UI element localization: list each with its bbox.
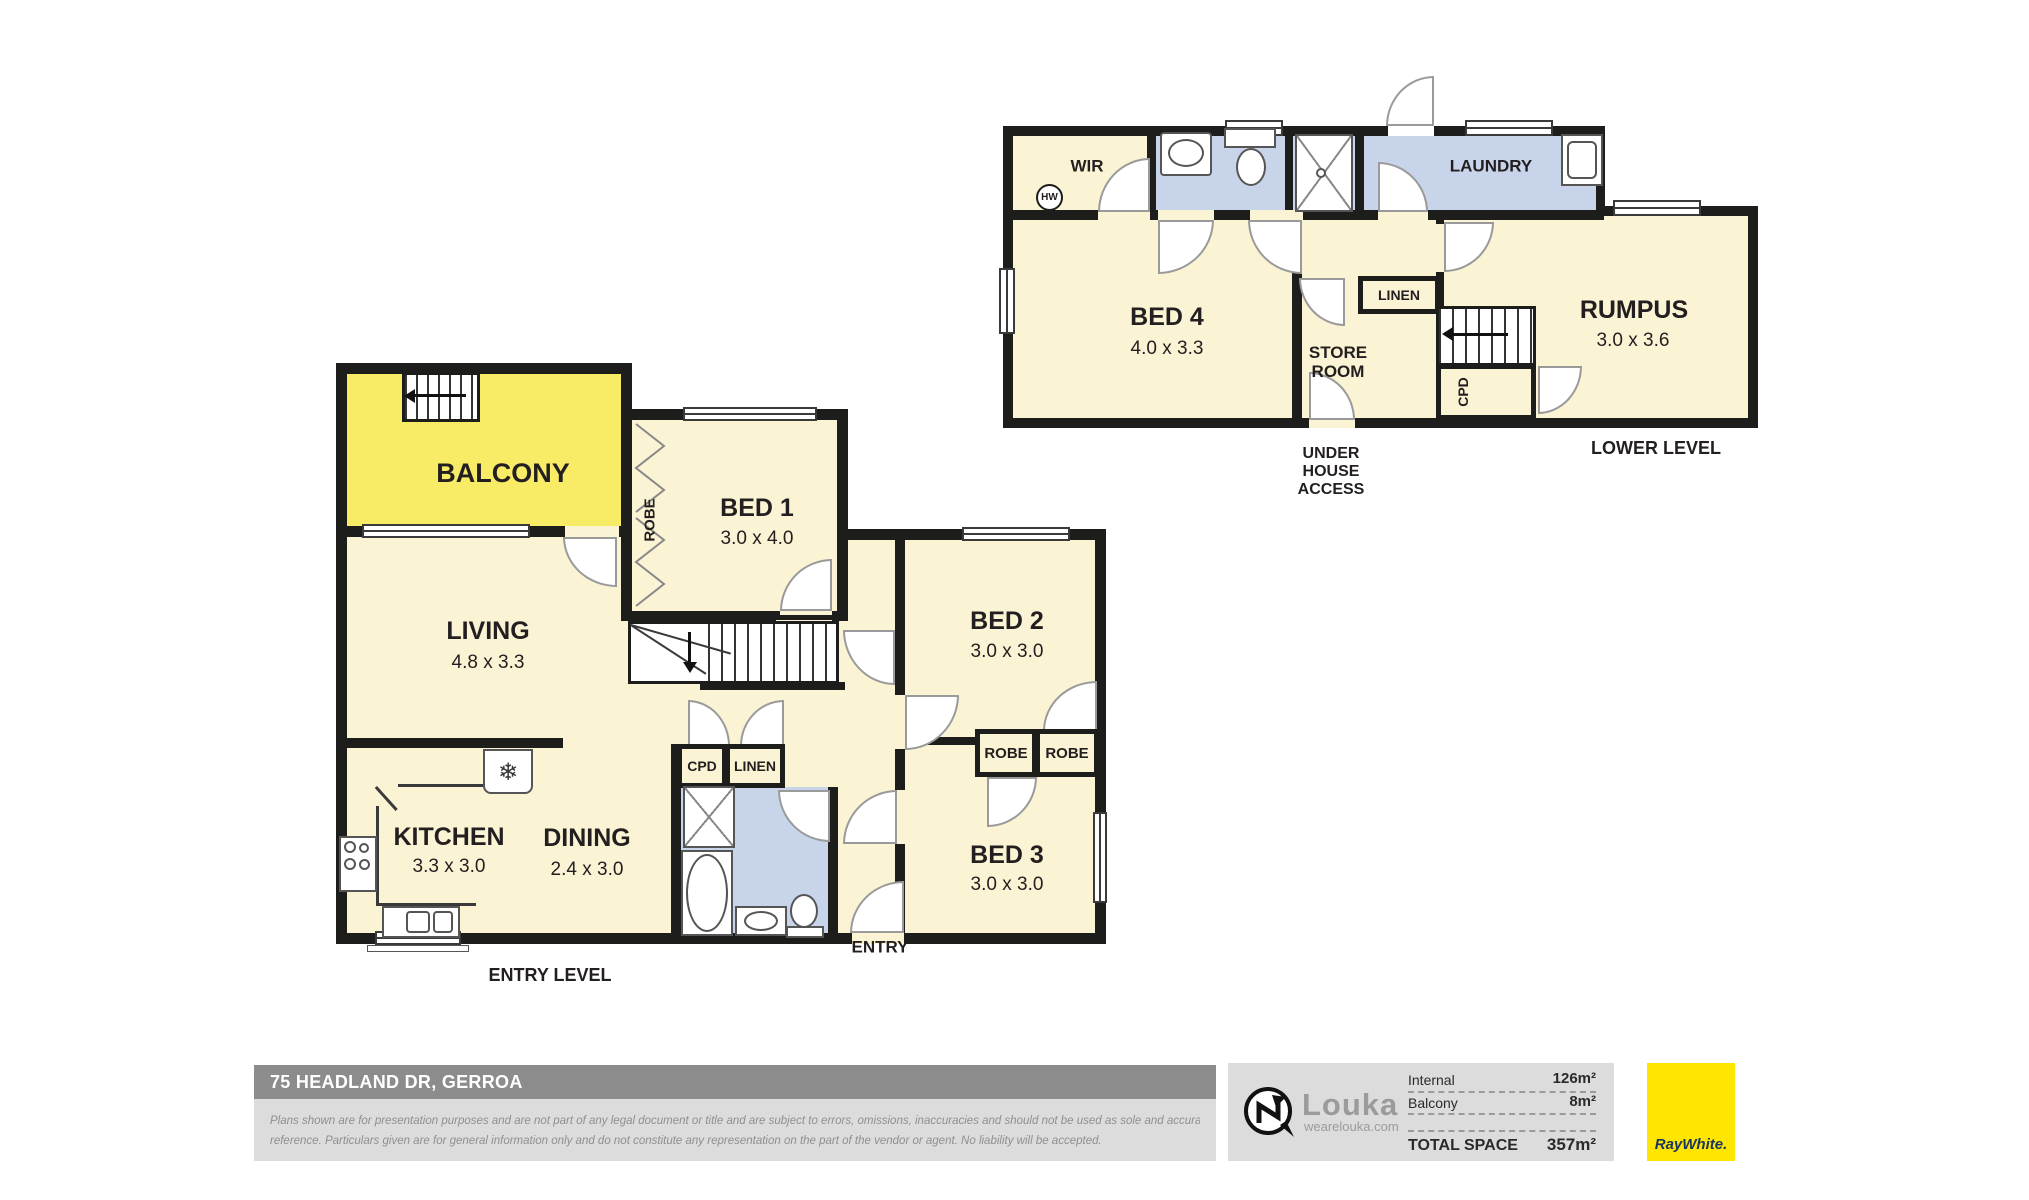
- internal-label: Internal: [1408, 1072, 1455, 1088]
- wall: [336, 738, 563, 748]
- toilet-bowl-icon: [1236, 148, 1266, 186]
- balcony-label: BALCONY: [436, 458, 570, 488]
- window: [962, 527, 1070, 541]
- door-arc: [1386, 76, 1434, 126]
- toilet-cistern-icon: [1224, 128, 1276, 148]
- wall: [1355, 126, 1364, 216]
- louka-name: Louka: [1302, 1087, 1398, 1123]
- bed3-label: BED 3: [970, 841, 1044, 869]
- laundry-tub-basin-icon: [1567, 141, 1597, 179]
- window: [1613, 200, 1701, 216]
- wall: [837, 409, 848, 621]
- rumpus-label: RUMPUS: [1580, 296, 1688, 324]
- stove-burner: [359, 859, 370, 870]
- stairs-arrow: [1452, 333, 1508, 336]
- divider: [1408, 1130, 1596, 1132]
- window: [1093, 812, 1107, 903]
- wall: [621, 537, 632, 621]
- door-opening: [1436, 224, 1444, 272]
- kitchen-dims: 3.3 x 3.0: [413, 856, 486, 878]
- divider: [1408, 1091, 1596, 1093]
- bathtub-basin: [686, 854, 728, 932]
- bed1-dims: 3.0 x 4.0: [721, 528, 794, 550]
- stairs-arrow: [414, 394, 466, 397]
- bed1-robe-label: ROBE: [642, 498, 659, 541]
- disclaimer-line1: Plans shown are for presentation purpose…: [270, 1111, 1200, 1131]
- bed3-robe-closet: ROBE: [975, 729, 1037, 777]
- raywhite-wordmark: RayWhite.: [1647, 1136, 1735, 1153]
- balcony-area-value: 8m²: [1569, 1093, 1596, 1110]
- dining-dims: 2.4 x 3.0: [551, 859, 624, 881]
- bed4-dims: 4.0 x 3.3: [1131, 338, 1204, 360]
- wall: [621, 363, 632, 537]
- wall: [336, 363, 632, 374]
- address-bar: 75 HEADLAND DR, GERROA: [254, 1065, 1216, 1099]
- bed1-label: BED 1: [720, 494, 794, 522]
- floorplan-page: LINEN CPD HW WIR LAUNDRY BED 4 4.0 x 3.3…: [0, 0, 2029, 1200]
- bed4-label: BED 4: [1130, 303, 1204, 331]
- door-opening: [1388, 126, 1434, 136]
- counter-edge: [398, 784, 484, 787]
- wall: [1003, 418, 1758, 428]
- cpd-under-stairs: [1436, 364, 1536, 420]
- balcony-area-label: Balcony: [1408, 1095, 1458, 1111]
- linen-closet-lower: LINEN: [1358, 276, 1440, 314]
- sink-basin-icon: [1168, 139, 1204, 167]
- laundry-label: LAUNDRY: [1450, 156, 1532, 175]
- louka-panel: Louka wearelouka.com Internal 126m² Balc…: [1228, 1063, 1614, 1161]
- door-opening: [565, 526, 619, 537]
- fridge-snowflake-icon: ❄: [498, 758, 518, 786]
- stairs-arrow-head: [404, 389, 415, 403]
- hw-label: HW: [1041, 192, 1058, 203]
- wall: [1285, 126, 1293, 216]
- louka-compass-icon: [1242, 1085, 1296, 1139]
- shower-icon: [683, 786, 735, 848]
- bed2-dims: 3.0 x 3.0: [971, 641, 1044, 663]
- total-space-value: 357m²: [1547, 1135, 1596, 1155]
- toilet-cistern-icon: [786, 926, 824, 938]
- raywhite-logo: RayWhite.: [1647, 1063, 1735, 1161]
- kitchen-sink-bowl: [406, 911, 430, 933]
- kitchen-sink-bowl: [433, 911, 453, 933]
- window: [1465, 120, 1553, 136]
- stairs-arrow: [688, 632, 691, 664]
- toilet-bowl-icon: [790, 894, 818, 928]
- door-opening: [1158, 210, 1214, 220]
- stairs-arrow-head: [683, 662, 697, 673]
- bed3-dims: 3.0 x 3.0: [971, 874, 1044, 896]
- disclaimer-line2: reference. Particulars given are for gen…: [270, 1131, 1200, 1151]
- cpd-closet-main: CPD: [677, 744, 727, 788]
- window: [999, 268, 1015, 334]
- door-opening: [895, 695, 905, 749]
- cpd-label-lower: CPD: [1455, 377, 1471, 407]
- store-room-label: STORE ROOM: [1293, 343, 1383, 381]
- room-balcony: [341, 368, 628, 530]
- hot-water-icon: HW: [1036, 184, 1063, 211]
- entry-level-caption: ENTRY LEVEL: [488, 965, 611, 985]
- area-table: Internal 126m² Balcony 8m² TOTAL SPACE 3…: [1408, 1063, 1596, 1161]
- lower-level-caption: LOWER LEVEL: [1591, 438, 1721, 458]
- wall: [1748, 206, 1758, 428]
- wir-label: WIR: [1070, 156, 1103, 175]
- window: [683, 407, 817, 421]
- dining-label: DINING: [543, 824, 631, 852]
- disclaimer-panel: Plans shown are for presentation purpose…: [254, 1099, 1216, 1161]
- shower-head-icon: [1316, 168, 1326, 178]
- kitchen-label: KITCHEN: [393, 823, 504, 851]
- window-sill: [367, 945, 469, 952]
- under-house-access-label: UNDER HOUSE ACCESS: [1285, 445, 1377, 499]
- living-dims: 4.8 x 3.3: [452, 652, 525, 674]
- vanity-basin: [744, 911, 778, 931]
- fridge-icon: ❄: [483, 749, 533, 794]
- window: [362, 524, 530, 538]
- divider: [1408, 1113, 1596, 1115]
- rumpus-dims: 3.0 x 3.6: [1597, 330, 1670, 352]
- bed2-robe-closet: ROBE: [1035, 729, 1099, 777]
- bed2-label: BED 2: [970, 607, 1044, 635]
- louka-url: wearelouka.com: [1304, 1119, 1399, 1134]
- total-space-label: TOTAL SPACE: [1408, 1137, 1518, 1155]
- stove-burner: [344, 841, 356, 853]
- living-label: LIVING: [446, 617, 529, 645]
- address-text: 75 HEADLAND DR, GERROA: [254, 1072, 523, 1093]
- linen-closet-main: LINEN: [725, 744, 785, 788]
- stove-burner: [344, 858, 356, 870]
- stove-burner: [359, 843, 369, 853]
- stairs-arrow-head: [1442, 327, 1453, 341]
- internal-value: 126m²: [1553, 1070, 1596, 1087]
- entry-label: ENTRY: [852, 937, 909, 956]
